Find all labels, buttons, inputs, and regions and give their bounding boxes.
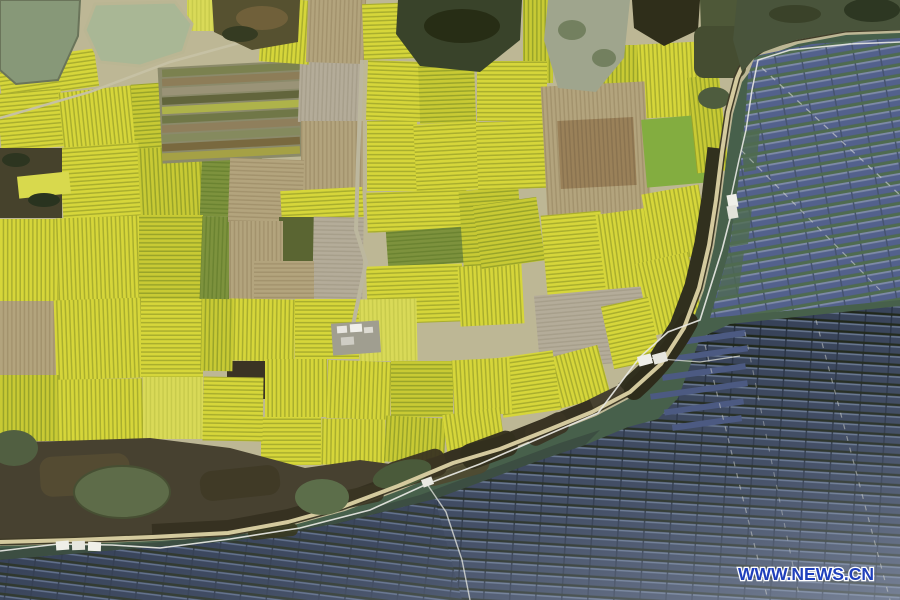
svg-text:WWW.NEWS.CN: WWW.NEWS.CN	[738, 564, 874, 584]
